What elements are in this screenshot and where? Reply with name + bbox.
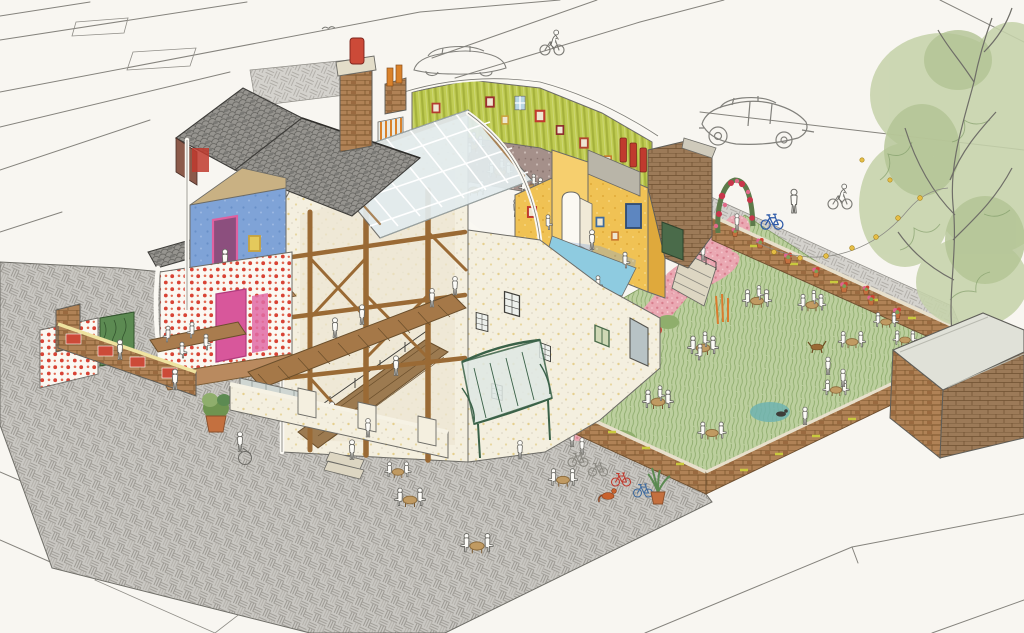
axonometric-pub-illustration [0, 0, 1024, 633]
blue-framed-window [626, 204, 641, 228]
red-chimney-pot [350, 38, 364, 64]
pedestrian [791, 189, 797, 213]
yellow-picture [249, 236, 260, 251]
illustration-page [0, 0, 1024, 633]
